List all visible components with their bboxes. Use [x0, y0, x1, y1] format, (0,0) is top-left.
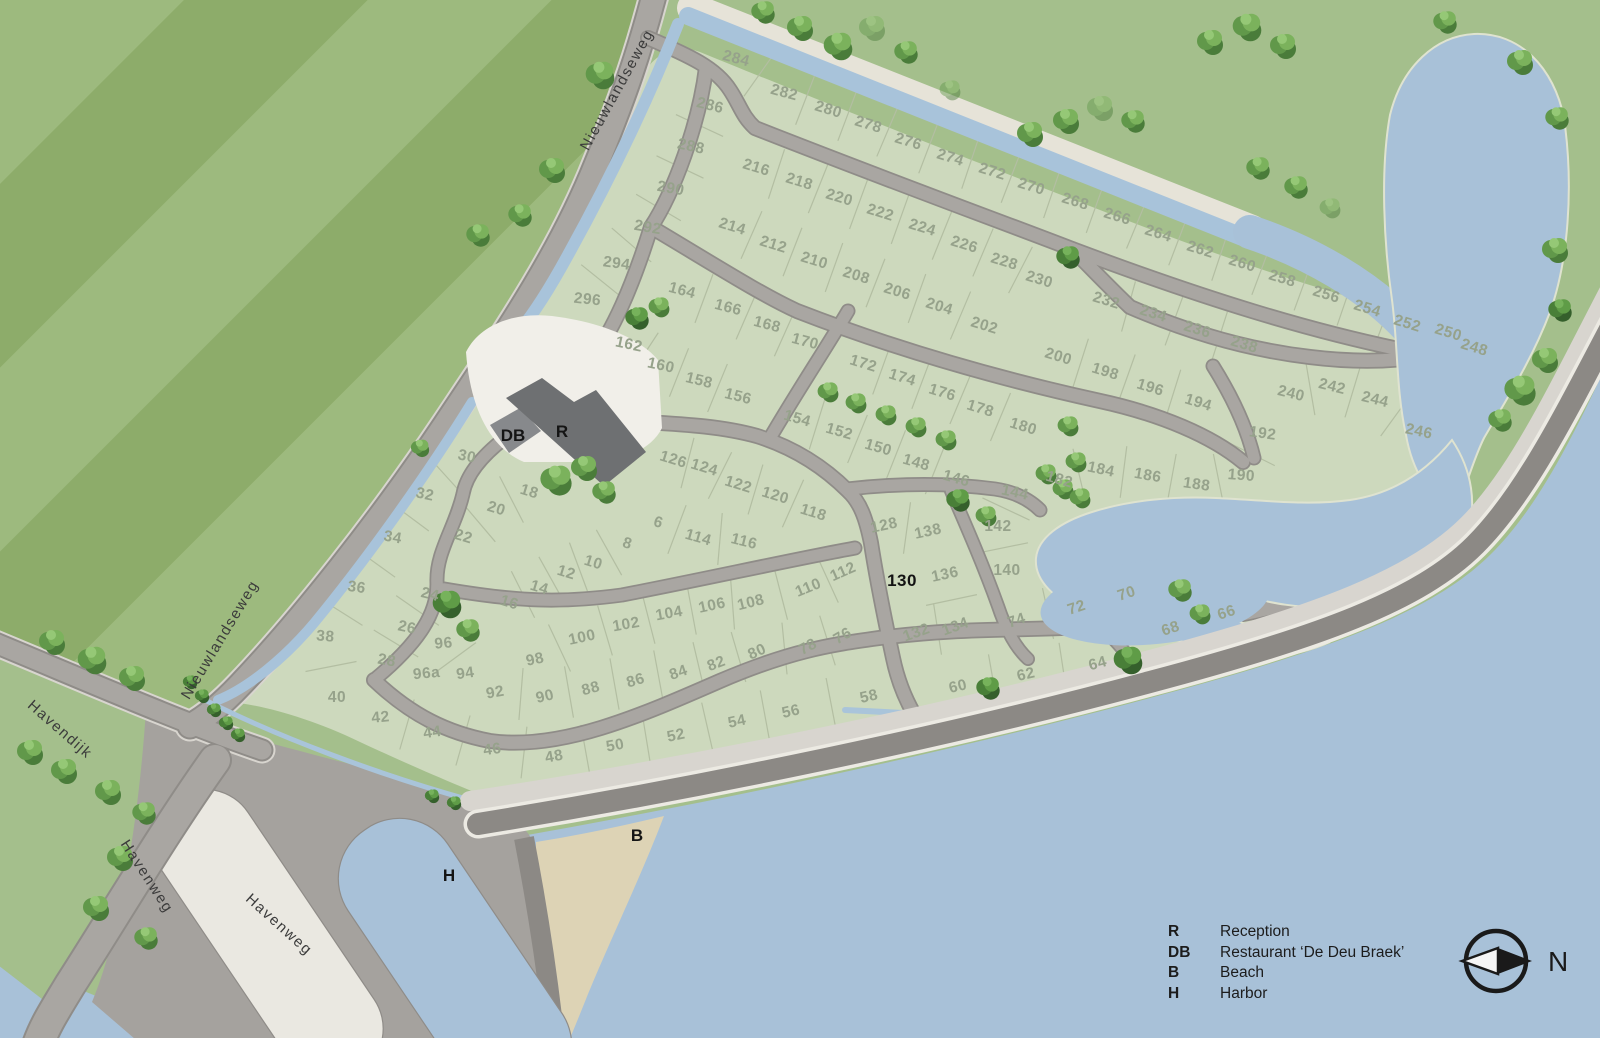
legend-key-b: B [1168, 963, 1220, 984]
tree-foliage [141, 927, 150, 936]
compass-north-label: N [1548, 946, 1568, 977]
legend-label-restaurant: Restaurant ‘De Deu Braek’ [1220, 943, 1404, 964]
tree-foliage [58, 759, 68, 769]
plot-label-140: 140 [993, 562, 1020, 579]
plot-label-38: 38 [316, 627, 336, 646]
tree-foliage [546, 158, 556, 168]
compass: N [1452, 916, 1582, 1006]
tree-foliage [85, 647, 96, 658]
tree-foliage [1024, 122, 1034, 132]
plot-label-48: 48 [544, 747, 565, 767]
tree-foliage [881, 405, 889, 413]
tree-foliage [823, 382, 831, 390]
tree-foliage [211, 703, 217, 709]
plot-label-42: 42 [371, 708, 391, 727]
legend-label-beach: Beach [1220, 963, 1264, 984]
poi-marker-b: B [631, 826, 643, 845]
legend-key-db: DB [1168, 943, 1220, 964]
plot-label-46: 46 [482, 740, 502, 759]
tree-foliage [758, 1, 767, 10]
tree-foliage [451, 796, 457, 802]
plot-label-130: 130 [887, 571, 917, 590]
tree-foliage [831, 33, 842, 44]
tree-foliage [24, 740, 34, 750]
tree-foliage [1175, 579, 1184, 588]
tree-foliage [1539, 348, 1549, 358]
tree-foliage [941, 430, 949, 438]
plot-label-94: 94 [455, 664, 475, 683]
poi-marker-h: H [443, 866, 455, 885]
legend-key-r: R [1168, 922, 1220, 943]
tree-foliage [90, 896, 100, 906]
tree-foliage [599, 481, 608, 490]
poi-marker-db: DB [501, 426, 526, 445]
tree-foliage [632, 307, 641, 316]
tree-foliage [1121, 647, 1132, 658]
poi-marker-r: R [556, 422, 568, 441]
tree-foliage [1552, 107, 1561, 116]
plot-label-34: 34 [382, 528, 403, 548]
tree-foliage [416, 440, 423, 447]
legend-row-restaurant: DB Restaurant ‘De Deu Braek’ [1168, 943, 1404, 964]
tree-foliage [981, 506, 989, 514]
legend-row-harbor: H Harbor [1168, 984, 1404, 1005]
tree-foliage [1253, 157, 1262, 166]
tree-foliage [1063, 246, 1072, 255]
plot-label-92: 92 [485, 683, 506, 703]
tree-foliage [223, 716, 229, 722]
tree-foliage [1094, 96, 1104, 106]
plot-label-36: 36 [346, 578, 366, 597]
plot-label-142: 142 [984, 518, 1011, 535]
tree-foliage [515, 204, 524, 213]
tree-foliage [953, 489, 962, 498]
tree-foliage [911, 417, 919, 425]
tree-foliage [1291, 176, 1300, 185]
tree-foliage [851, 393, 859, 401]
legend-row-beach: B Beach [1168, 963, 1404, 984]
tree-foliage [102, 780, 112, 790]
tree-foliage [1514, 50, 1524, 60]
tree-foliage [1075, 488, 1083, 496]
tree-foliage [1128, 110, 1137, 119]
tree-foliage [235, 728, 241, 734]
legend-row-reception: R Reception [1168, 922, 1404, 943]
tree-foliage [549, 466, 561, 478]
tree-foliage [1513, 376, 1525, 388]
plot-label-96a: 96a [412, 664, 441, 683]
site-map: 2842822802782762742722702682662642622602… [0, 0, 1600, 1038]
tree-foliage [1277, 34, 1287, 44]
tree-foliage [440, 591, 451, 602]
legend-label-reception: Reception [1220, 922, 1290, 943]
tree-foliage [126, 666, 136, 676]
tree-foliage [46, 630, 56, 640]
tree-foliage [1549, 238, 1559, 248]
tree-foliage [1495, 409, 1504, 418]
plot-label-28: 28 [376, 651, 397, 671]
tree-foliage [1063, 416, 1071, 424]
tree-foliage [578, 456, 588, 466]
tree-foliage [463, 619, 472, 628]
legend-label-harbor: Harbor [1220, 984, 1267, 1005]
tree-foliage [1060, 109, 1070, 119]
plot-label-50: 50 [605, 736, 626, 756]
plot-label-296: 296 [573, 290, 602, 310]
tree-foliage [1195, 604, 1203, 612]
plot-label-40: 40 [328, 689, 346, 706]
tree-foliage [1555, 299, 1564, 308]
legend-key-h: H [1168, 984, 1220, 1005]
plot-label-96: 96 [434, 634, 454, 653]
plot-label-190: 190 [1227, 466, 1255, 485]
tree-foliage [139, 802, 148, 811]
legend: R Reception DB Restaurant ‘De Deu Braek’… [1168, 922, 1404, 1004]
tree-foliage [1325, 198, 1333, 206]
tree-foliage [1071, 452, 1079, 460]
tree-foliage [866, 16, 876, 26]
site-map-canvas: 2842822802782762742722702682662642622602… [0, 0, 1600, 1038]
tree-foliage [1204, 30, 1214, 40]
tree-foliage [1240, 14, 1251, 25]
tree-foliage [794, 16, 804, 26]
tree-foliage [983, 677, 992, 686]
plot-label-44: 44 [422, 723, 442, 742]
tree-foliage [473, 224, 482, 233]
tree-foliage [1440, 11, 1449, 20]
tree-foliage [945, 80, 953, 88]
tree-foliage [901, 41, 910, 50]
tree-foliage [593, 62, 604, 73]
tree-foliage [429, 789, 435, 795]
tree-foliage [654, 297, 662, 305]
